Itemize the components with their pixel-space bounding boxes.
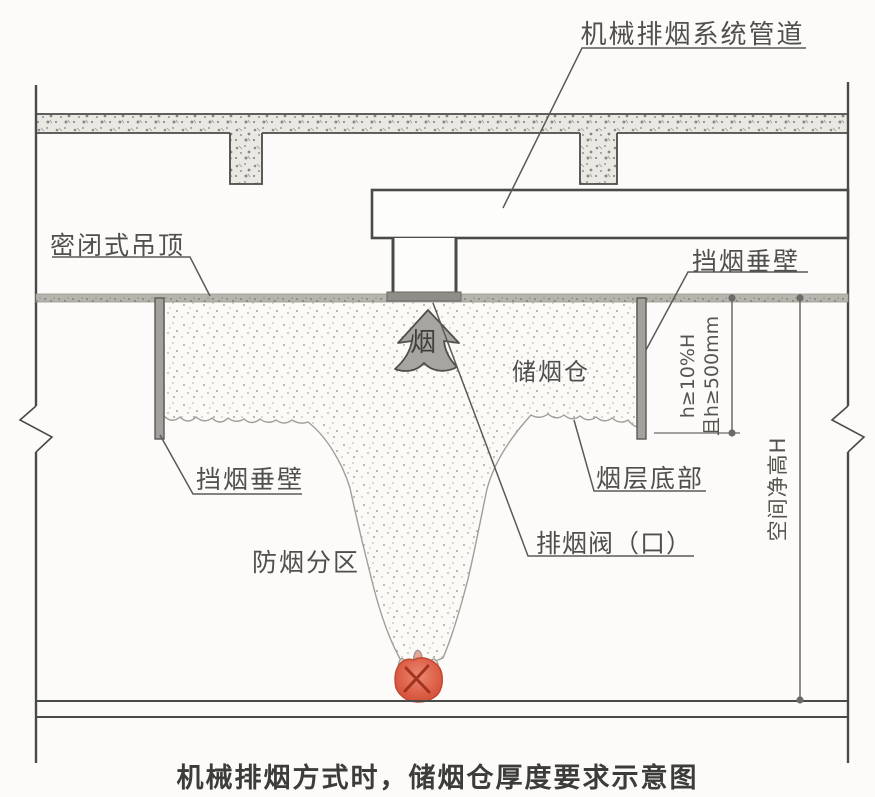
left-wall-break-icon [20,406,52,452]
branch-duct [393,238,456,294]
leader-sealed-ceiling [52,257,210,296]
smoke-zone-label: 防烟分区 [252,543,360,579]
smoke-reservoir-label: 储烟仓 [512,352,590,387]
sealed-ceiling-label: 密闭式吊顶 [50,226,185,262]
diagram-canvas: 机械排烟系统管道 密闭式吊顶 挡烟垂壁 储烟仓 烟 挡烟垂壁 烟层底部 排烟阀（… [0,0,875,797]
diagram-caption: 机械排烟方式时，储烟仓厚度要求示意图 [0,756,875,795]
left-wall [20,85,52,763]
floor [36,701,848,717]
dimension-clear-height [796,294,803,703]
beam-left [230,133,262,184]
leader-barrier-right [646,272,808,350]
exhaust-duct [372,190,848,238]
reservoir-depth-dimension-text: h≥10%H 且h≥500mm [676,301,724,451]
clear-height-dimension-text: 空间净高H [766,433,790,545]
smoke-barrier-right-label: 挡烟垂壁 [692,242,800,278]
smoke-barrier-left-label: 挡烟垂壁 [196,460,304,496]
smoke-barrier-left-wall [155,298,164,439]
right-wall [832,82,864,763]
smoke-label: 烟 [410,322,436,359]
exhaust-valve-label: 排烟阀（口） [536,524,692,560]
reservoir-depth-line1: h≥10%H [676,301,700,451]
smoke-barrier-right-wall [637,298,646,439]
diagram-drawing [0,0,875,797]
right-wall-break-icon [832,406,864,452]
exhaust-valve [387,292,461,301]
smoke-layer-bottom-label: 烟层底部 [596,459,704,495]
roof-slab [36,114,848,133]
beam-right [580,133,617,184]
reservoir-depth-line2: 且h≥500mm [700,301,724,451]
duct-label: 机械排烟系统管道 [575,14,810,51]
